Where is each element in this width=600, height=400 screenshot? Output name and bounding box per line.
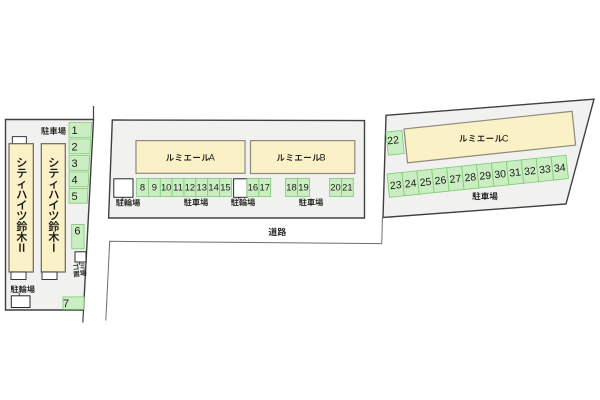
svg-text:6: 6 [74, 225, 80, 237]
svg-text:29: 29 [479, 170, 492, 183]
svg-text:14: 14 [208, 182, 218, 193]
svg-text:5: 5 [71, 191, 77, 203]
svg-text:26: 26 [434, 174, 447, 187]
svg-text:23: 23 [389, 179, 402, 192]
svg-text:31: 31 [509, 166, 522, 179]
svg-text:B: B [320, 153, 326, 163]
svg-text:11: 11 [173, 182, 183, 193]
svg-text:20: 20 [330, 182, 340, 193]
svg-text:12: 12 [185, 182, 195, 193]
svg-text:9: 9 [152, 182, 157, 193]
svg-text:3: 3 [71, 158, 77, 170]
svg-text:28: 28 [464, 171, 477, 184]
svg-text:7: 7 [63, 298, 69, 310]
svg-text:34: 34 [553, 162, 566, 175]
svg-text:21: 21 [342, 182, 352, 193]
svg-text:1: 1 [71, 125, 77, 137]
svg-text:10: 10 [161, 182, 171, 193]
svg-text:25: 25 [419, 176, 432, 189]
svg-text:18: 18 [286, 182, 296, 193]
svg-text:22: 22 [387, 134, 400, 147]
svg-text:19: 19 [298, 182, 308, 193]
svg-text:27: 27 [449, 173, 462, 186]
svg-text:32: 32 [524, 165, 537, 178]
svg-text:8: 8 [140, 182, 145, 193]
svg-text:30: 30 [494, 168, 507, 181]
svg-text:4: 4 [71, 174, 77, 186]
svg-text:2: 2 [71, 141, 77, 153]
svg-text:C: C [502, 134, 509, 144]
svg-text:33: 33 [539, 163, 552, 176]
svg-text:A: A [209, 153, 215, 163]
svg-text:24: 24 [404, 177, 417, 190]
svg-text:17: 17 [260, 182, 270, 193]
svg-text:15: 15 [220, 182, 230, 193]
svg-text:13: 13 [197, 182, 207, 193]
svg-text:16: 16 [248, 182, 258, 193]
